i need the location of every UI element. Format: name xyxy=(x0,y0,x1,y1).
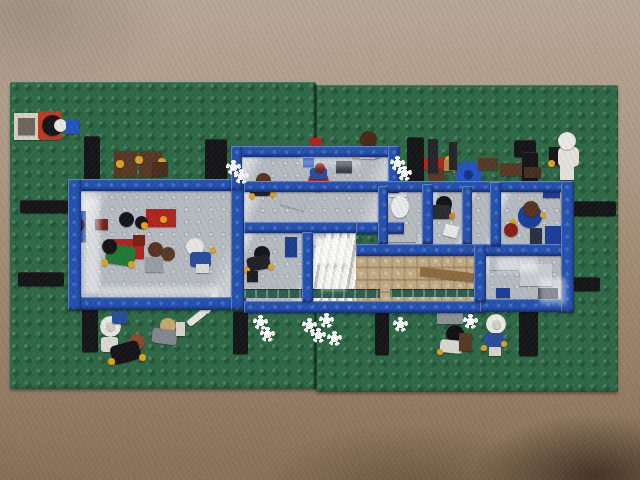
mid-floor xyxy=(244,192,378,223)
wall xyxy=(68,179,81,310)
brown-bench xyxy=(524,167,541,178)
minifig-hand xyxy=(437,349,443,355)
minifig-arm xyxy=(176,322,185,336)
black-strip xyxy=(84,136,100,182)
minifig-hand xyxy=(501,341,507,347)
white-flower xyxy=(396,320,405,329)
minifig-hand xyxy=(481,345,487,351)
black-strip xyxy=(18,272,64,286)
minifig-hand xyxy=(449,213,455,219)
black-strip xyxy=(375,309,389,355)
brick xyxy=(66,119,79,134)
white-flower xyxy=(314,331,323,340)
corridor-floor xyxy=(472,192,490,245)
photo-stage xyxy=(0,0,640,480)
minifig-hand xyxy=(540,212,546,218)
wall xyxy=(244,301,484,313)
toilet xyxy=(391,196,409,218)
glare xyxy=(316,238,350,264)
glare xyxy=(100,286,220,296)
white-flower xyxy=(322,316,331,325)
minifig-hand xyxy=(128,261,135,268)
glare xyxy=(320,268,346,290)
white-flower xyxy=(466,317,475,326)
minifig-hand xyxy=(249,193,255,199)
minifig-head xyxy=(119,212,134,227)
black-strip xyxy=(82,306,98,352)
wall xyxy=(356,244,574,256)
minifig-torso xyxy=(112,311,127,324)
brown-brick xyxy=(459,333,472,351)
glare xyxy=(497,258,537,272)
minifig-legs xyxy=(489,347,501,356)
brown-brick xyxy=(152,162,168,176)
wall xyxy=(378,186,388,244)
white-flower xyxy=(305,321,314,330)
black-strip xyxy=(233,311,248,354)
minifig-hand xyxy=(210,247,216,253)
hat-center xyxy=(492,320,501,329)
gray-brick xyxy=(145,257,163,272)
white-flower xyxy=(237,172,246,181)
scene xyxy=(0,0,640,480)
minifig-legs xyxy=(560,164,574,180)
crate-grill xyxy=(18,118,35,135)
gray-brick xyxy=(437,312,463,324)
dark-post xyxy=(428,139,438,173)
wall xyxy=(490,182,501,246)
wall xyxy=(231,179,244,310)
white-flower xyxy=(330,334,339,343)
black-strip xyxy=(20,200,68,213)
brown-stool xyxy=(161,247,175,261)
minifig-hand xyxy=(116,160,124,168)
wall xyxy=(302,232,313,302)
keypad xyxy=(247,271,258,282)
table-center xyxy=(464,170,473,179)
minifig-head xyxy=(523,201,539,217)
white-flower xyxy=(263,330,272,339)
glare xyxy=(300,158,360,167)
wall xyxy=(231,146,399,157)
window-strip xyxy=(390,289,484,297)
dark-red-brick xyxy=(133,235,145,245)
minifig-hand xyxy=(548,160,555,167)
minifig-hand xyxy=(141,222,148,229)
wall xyxy=(68,179,244,191)
minifig-hand xyxy=(268,264,274,270)
minifig-hand xyxy=(135,156,143,164)
brown-bench xyxy=(478,158,498,170)
white-flower xyxy=(256,318,265,327)
minifig-legs xyxy=(196,264,209,273)
blue-tile xyxy=(496,288,510,298)
wall xyxy=(462,186,472,244)
minifig-hand xyxy=(101,259,108,266)
wall xyxy=(474,244,486,302)
white-flower xyxy=(400,169,409,178)
brown-bench xyxy=(500,163,522,176)
dark-red-round xyxy=(504,223,518,237)
wall xyxy=(244,181,574,192)
minifig-head xyxy=(558,132,576,150)
wall xyxy=(68,297,246,310)
dark-tile xyxy=(530,228,542,244)
wall xyxy=(422,184,433,244)
minifig-head xyxy=(102,239,117,254)
glare xyxy=(540,278,566,304)
blue-fixture xyxy=(285,237,297,257)
dark-post xyxy=(449,142,457,170)
minifig-hand xyxy=(139,354,146,361)
minifig-hand xyxy=(160,216,167,223)
blue-fixture xyxy=(545,226,562,246)
minifig-hand xyxy=(108,358,115,365)
glare xyxy=(84,198,100,294)
